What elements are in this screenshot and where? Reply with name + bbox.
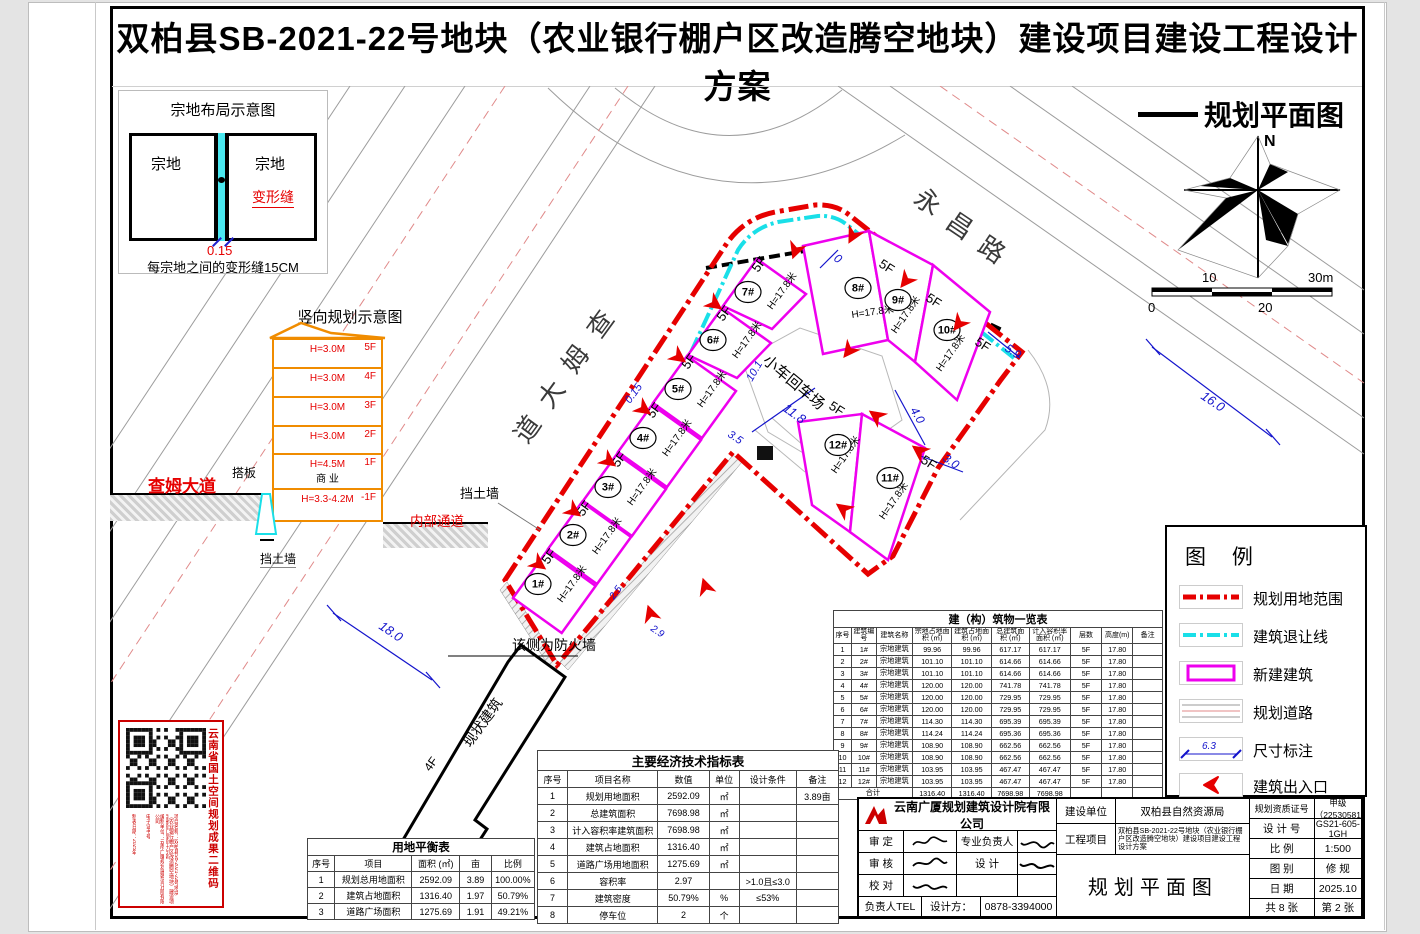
margin-line [1384, 2, 1385, 930]
company-name: 云南广厦规划建筑设计院有限公司 [888, 798, 1056, 832]
building-number: 11# [881, 473, 899, 485]
plan-label: 2.9 [647, 623, 666, 641]
building-number: 8# [852, 283, 864, 295]
cell: 5# [852, 691, 877, 703]
plan-label: 4.0 [907, 405, 928, 427]
cell: 11# [852, 763, 877, 775]
cell: 宗地建筑 [876, 715, 912, 727]
cell [1133, 763, 1163, 775]
cell: 4 [834, 679, 852, 691]
cell: 1 [538, 788, 568, 805]
cell: 1316.40 [658, 839, 709, 856]
cell: 道路广场面积 [335, 904, 412, 920]
cell: 99.96 [912, 643, 951, 655]
cell: 1# [852, 643, 877, 655]
cell: 7 [538, 890, 568, 907]
cell: 建筑名称 [876, 628, 912, 644]
parcel-left-box [129, 133, 217, 241]
qr-side-label: 云南省国土空间规划成果二维码 [206, 728, 221, 889]
cell: 17.80 [1102, 691, 1133, 703]
signature [1018, 853, 1056, 874]
landuse-table: 用地平衡表序号项目面积 (㎡)亩比例1规划总用地面积2592.093.89100… [307, 838, 535, 920]
cell: 695.39 [1029, 715, 1070, 727]
cell: 序号 [834, 628, 852, 644]
floor-1f: H=4.5M 商 业 1F [272, 453, 383, 490]
check-label: 审 核 [859, 853, 904, 874]
cell [1133, 751, 1163, 763]
cell: 计入容积率面积 (㎡) [1029, 628, 1070, 644]
building-number: 3# [602, 482, 614, 494]
parcel-caption: 每宗地之间的变形缝15CM [119, 257, 327, 276]
floor-5f: H=3.0M5F [272, 338, 383, 369]
cell: 617.17 [1029, 643, 1070, 655]
cell: 467.47 [991, 775, 1029, 787]
cell: 120.00 [952, 691, 991, 703]
indicator-table: 主要经济技术指标表序号项目名称数值单位设计条件备注1规划用地面积2592.09㎡… [537, 750, 839, 924]
cell: 1 [834, 643, 852, 655]
table-row: 1010#宗地建筑108.90108.90662.56662.565F17.80 [834, 751, 1163, 763]
cell: 建筑密度 [568, 890, 658, 907]
cell: 宗地建筑 [876, 751, 912, 763]
table-row: 1规划总用地面积2592.093.89100.00% [308, 872, 535, 888]
table-row: 1规划用地面积2592.09㎡3.89亩 [538, 788, 839, 805]
cell: 3 [538, 822, 568, 839]
table-row: 55#宗地建筑120.00120.00729.95729.955F17.80 [834, 691, 1163, 703]
table-row: 1212#宗地建筑103.95103.95467.47467.475F17.80 [834, 775, 1163, 787]
cell: 101.10 [952, 655, 991, 667]
cell: 741.78 [1029, 679, 1070, 691]
legend-item-boundary: 规划用地范围 [1179, 585, 1355, 611]
cell: 5F [1070, 643, 1101, 655]
cell [1133, 643, 1163, 655]
cell [739, 788, 796, 805]
cell: 宗地建筑 [876, 655, 912, 667]
cell: 729.95 [1029, 691, 1070, 703]
joint-label: 变形缝 [252, 187, 294, 208]
cell [739, 907, 796, 924]
cell: 宗地建筑 [876, 691, 912, 703]
cell: 12# [852, 775, 877, 787]
cell: 101.10 [912, 655, 951, 667]
table-row: 11#宗地建筑99.9699.96617.17617.175F17.80 [834, 643, 1163, 655]
legend-item-setback: 建筑退让线 [1179, 623, 1355, 649]
cell: 宗地建筑 [876, 763, 912, 775]
legend-item-new-building: 新建建筑 [1179, 661, 1355, 687]
table-header-row: 序号项目名称数值单位设计条件备注 [538, 771, 839, 788]
subtitle-dash [1138, 112, 1198, 117]
cell: 宗地建筑 [876, 703, 912, 715]
cell: 467.47 [1029, 763, 1070, 775]
cert-label: 规划资质证号 [1250, 799, 1315, 818]
table-header-row: 序号建筑编号建筑名称宗地占地面积 (㎡)建筑占地面积 (㎡)总建筑面积 (㎡)计… [834, 628, 1163, 644]
cell: 114.24 [912, 727, 951, 739]
cell: 3.89 [460, 872, 492, 888]
category-value: 修 规 [1315, 859, 1361, 878]
title-block: 云南广厦规划建筑设计院有限公司 审 定 专业负责人 审 核 设 计 校 对 负责… [857, 797, 1363, 918]
cell: 2# [852, 655, 877, 667]
cell: 662.56 [1029, 739, 1070, 751]
cell: 729.95 [991, 703, 1029, 715]
cell: 建筑占地面积 (㎡) [952, 628, 991, 644]
cell [1133, 691, 1163, 703]
cell [796, 856, 838, 873]
cell: 容积率 [568, 873, 658, 890]
slab-label: 搭板 [232, 464, 256, 481]
cell: 50.79% [491, 888, 534, 904]
cell: 4 [538, 839, 568, 856]
cell: 120.00 [952, 679, 991, 691]
cell [796, 805, 838, 822]
cell: 9# [852, 739, 877, 751]
cell: 8# [852, 727, 877, 739]
cell: % [709, 890, 739, 907]
cell [796, 839, 838, 856]
proof-label: 校 对 [859, 875, 904, 896]
cell: 120.00 [912, 703, 951, 715]
plan-label: 查 [581, 305, 621, 344]
cert-value: 甲级（22530581 [1315, 799, 1361, 818]
parcel-title: 宗地布局示意图 [119, 99, 327, 120]
cell: 5F [1070, 703, 1101, 715]
cell: 5F [1070, 655, 1101, 667]
cell: 103.95 [912, 775, 951, 787]
cell: 120.00 [952, 703, 991, 715]
owner-value: 双柏县自然资源局 [1116, 799, 1249, 823]
table-row: 8停车位2个 [538, 907, 839, 924]
retaining-wall-label: 挡土墙 [260, 550, 296, 568]
table-title-row: 主要经济技术指标表 [538, 751, 839, 771]
floor-4f: H=3.0M4F [272, 367, 383, 398]
entrance-arrow-icon [641, 604, 659, 622]
cell: 101.10 [912, 667, 951, 679]
cell: 宗地建筑 [876, 643, 912, 655]
cell: 建筑编号 [852, 628, 877, 644]
table-row: 7建筑密度50.79%%≤53% [538, 890, 839, 907]
cell: ≤53% [739, 890, 796, 907]
cell: 50.79% [658, 890, 709, 907]
cell: 3.89亩 [796, 788, 838, 805]
cell: 5F [1070, 775, 1101, 787]
cell [796, 890, 838, 907]
cell: 6 [834, 703, 852, 715]
legend-item-dimension: 6.3 尺寸标注 [1179, 737, 1355, 763]
utility-box [757, 446, 773, 460]
cell: 7698.98 [658, 805, 709, 822]
cell: 高度(m) [1102, 628, 1133, 644]
table-row: 22#宗地建筑101.10101.10614.66614.665F17.80 [834, 655, 1163, 667]
plan-label: 昌 [941, 206, 979, 245]
cell: 103.95 [952, 763, 991, 775]
cell: 5F [1070, 715, 1101, 727]
cell: 项目 [335, 856, 412, 872]
parcel-left-label: 宗地 [151, 153, 181, 174]
plan-label: 4F [421, 754, 441, 774]
cell: 17.80 [1102, 703, 1133, 715]
cell [739, 839, 796, 856]
building-number: 5# [672, 384, 684, 396]
cell: 467.47 [1029, 775, 1070, 787]
cell: 宗地建筑 [876, 775, 912, 787]
cell: 120.00 [912, 679, 951, 691]
cell: 108.90 [912, 751, 951, 763]
cell: 宗地建筑 [876, 667, 912, 679]
cell: 总建筑面积 (㎡) [991, 628, 1029, 644]
signature [1018, 831, 1056, 852]
cell [1133, 739, 1163, 751]
cell: 3 [834, 667, 852, 679]
cell: 101.10 [952, 667, 991, 679]
cell: ㎡ [709, 788, 739, 805]
retaining-wall-shape [254, 492, 282, 544]
cell: 17.80 [1102, 679, 1133, 691]
cell: 4# [852, 679, 877, 691]
parcel-layout-panel: 宗地布局示意图 宗地 宗地 变形缝 0.15 每宗地之间的变形缝15CM [118, 90, 328, 274]
cell: 2 [658, 907, 709, 924]
cell [1133, 727, 1163, 739]
cell: 114.30 [912, 715, 951, 727]
cell: 5F [1070, 667, 1101, 679]
cell [1133, 679, 1163, 691]
cell: 设计条件 [739, 771, 796, 788]
cell: 695.36 [991, 727, 1029, 739]
plan-label: 3.5 [725, 429, 745, 448]
plan-label: 16.0 [1198, 388, 1228, 415]
table-row: 2建筑占地面积1316.401.9750.79% [308, 888, 535, 904]
cell: ㎡ [709, 856, 739, 873]
cell: 10# [852, 751, 877, 763]
cell: ㎡ [709, 839, 739, 856]
table-row: 99#宗地建筑108.90108.90662.56662.565F17.80 [834, 739, 1163, 751]
cell: 个 [709, 907, 739, 924]
cell: 1316.40 [412, 888, 460, 904]
cell: 2 [308, 888, 335, 904]
cell: 729.95 [1029, 703, 1070, 715]
cell: 614.66 [1029, 667, 1070, 679]
cell [1133, 703, 1163, 715]
category-label: 图 别 [1250, 859, 1315, 878]
table-row: 77#宗地建筑114.30114.30695.39695.395F17.80 [834, 715, 1163, 727]
cell: 层数 [1070, 628, 1101, 644]
tel-value: 0878-3394000 [981, 897, 1056, 916]
cell: 序号 [308, 856, 335, 872]
cell: 1275.69 [658, 856, 709, 873]
cell [796, 822, 838, 839]
cell: 总建筑面积 [568, 805, 658, 822]
signature [904, 853, 957, 874]
cell: 108.90 [912, 739, 951, 751]
scale-label: 比 例 [1250, 839, 1315, 858]
cell: 7698.98 [658, 822, 709, 839]
cell: 6 [538, 873, 568, 890]
plan-label: 5.9 [1002, 341, 1024, 362]
table-header-row: 序号项目面积 (㎡)亩比例 [308, 856, 535, 872]
cell: 用地平衡表 [308, 839, 535, 856]
legend-item-entrance: 建筑出入口 [1179, 773, 1355, 799]
signature [904, 831, 957, 852]
cell: 17.80 [1102, 763, 1133, 775]
cell [796, 873, 838, 890]
cell: 108.90 [952, 751, 991, 763]
building-list-table: 建（构）筑物一览表序号建筑编号建筑名称宗地占地面积 (㎡)建筑占地面积 (㎡)总… [833, 610, 1163, 800]
table-row: 33#宗地建筑101.10101.10614.66614.665F17.80 [834, 667, 1163, 679]
sheets-total: 共 8 张 [1250, 899, 1315, 916]
plan-label: 3.0 [940, 451, 962, 472]
cell: 8 [834, 727, 852, 739]
cell: 2 [834, 655, 852, 667]
cell: 103.95 [952, 775, 991, 787]
cell: 3# [852, 667, 877, 679]
cell: 49.21% [491, 904, 534, 920]
cell: 17.80 [1102, 715, 1133, 727]
parcel-right-label: 宗地 [255, 153, 285, 174]
cell: 695.36 [1029, 727, 1070, 739]
cell: 项目名称 [568, 771, 658, 788]
inner-passage-label: 内部通道 [410, 510, 464, 530]
cell: 备注 [796, 771, 838, 788]
cell: 规划用地面积 [568, 788, 658, 805]
cell: 6# [852, 703, 877, 715]
cell: 17.80 [1102, 775, 1133, 787]
scale-tick: 10 [1202, 270, 1216, 285]
table-row: 1111#宗地建筑103.95103.95467.47467.475F17.80 [834, 763, 1163, 775]
cell: >1.0且≤3.0 [739, 873, 796, 890]
cell: 103.95 [912, 763, 951, 775]
date-value: 2025.10 [1315, 879, 1361, 898]
table-row: 6容积率2.97>1.0且≤3.0 [538, 873, 839, 890]
design-label: 设 计 [957, 853, 1018, 875]
signature [904, 875, 957, 896]
cell: 662.56 [991, 739, 1029, 751]
sheet-number: 第 2 张 [1315, 899, 1361, 916]
cell: 3 [308, 904, 335, 920]
scale-tick: 30m [1308, 270, 1333, 285]
floor-b1: H=3.3-4.2M-1F [272, 488, 383, 522]
cell: 614.66 [1029, 655, 1070, 667]
cell: 5F [1070, 739, 1101, 751]
cell: 17.80 [1102, 727, 1133, 739]
cell [1133, 775, 1163, 787]
cell: 108.90 [952, 739, 991, 751]
qr-text-column: 项目名称：双柏县SB-2021-22号地块（农业银行棚户区改造腾空地块）建设项目… [166, 814, 178, 904]
cell: 99.96 [952, 643, 991, 655]
margin-line [95, 2, 96, 930]
cell [709, 873, 739, 890]
cell: 114.24 [952, 727, 991, 739]
cell: 2 [538, 805, 568, 822]
date-label: 日 期 [1250, 879, 1315, 898]
scale-bar: 10 30m 0 20 [1140, 268, 1360, 320]
cell: 7 [834, 715, 852, 727]
table-row: 3道路广场面积1275.691.9149.21% [308, 904, 535, 920]
qr-panel: 云南省国土空间规划成果二维码 项目名称：双柏县SB-2021-22号地块（农业银… [118, 720, 224, 908]
legend-item-road: 规划道路 [1179, 699, 1355, 725]
cell: 17.80 [1102, 667, 1133, 679]
table-row: 66#宗地建筑120.00120.00729.95729.955F17.80 [834, 703, 1163, 715]
cell: 614.66 [991, 667, 1029, 679]
cell: 120.00 [912, 691, 951, 703]
cell: 宗地建筑 [876, 739, 912, 751]
plan-label: 该侧为防火墙 [512, 637, 596, 653]
cell: 1.91 [460, 904, 492, 920]
designno-value: GS21-605-1GH [1315, 819, 1361, 838]
building-number: 7# [742, 287, 754, 299]
cell: 停车位 [568, 907, 658, 924]
cell: 100.00% [491, 872, 534, 888]
cell: 比例 [491, 856, 534, 872]
table-row: 4建筑占地面积1316.40㎡ [538, 839, 839, 856]
north-compass: N [1168, 126, 1358, 286]
legend-title: 图 例 [1185, 541, 1263, 571]
building-number: 6# [707, 335, 719, 347]
cell: 建筑占地面积 [335, 888, 412, 904]
cell: 道路广场用地面积 [568, 856, 658, 873]
cell [1133, 655, 1163, 667]
cell: 5 [538, 856, 568, 873]
designno-label: 设 计 号 [1250, 819, 1315, 838]
cell: 5F [1070, 679, 1101, 691]
cell [739, 805, 796, 822]
cell: 1275.69 [412, 904, 460, 920]
cell: 2.97 [658, 873, 709, 890]
cell: 面积 (㎡) [412, 856, 460, 872]
legend-panel: 图 例 规划用地范围 建筑退让线 新建建筑 规划道路 6.3 尺寸标注 建筑出入… [1165, 525, 1367, 797]
cell: 114.30 [952, 715, 991, 727]
svg-text:6.3: 6.3 [1202, 741, 1216, 752]
cell: 宗地占地面积 (㎡) [912, 628, 951, 644]
cell: 5F [1070, 751, 1101, 763]
cell: ㎡ [709, 805, 739, 822]
cell: 1 [308, 872, 335, 888]
cell: 5 [834, 691, 852, 703]
cell: 614.66 [991, 655, 1029, 667]
cell: 2592.09 [412, 872, 460, 888]
scale-value: 1:500 [1315, 839, 1361, 858]
cell: 备注 [1133, 628, 1163, 644]
cell: 1.97 [460, 888, 492, 904]
building-number: 12# [829, 440, 847, 452]
qr-text-columns: 项目名称：双柏县SB-2021-22号地块（农业银行棚户区改造腾空地块）建设项目… [124, 814, 178, 904]
cell [739, 822, 796, 839]
lead-label: 专业负责人 [957, 831, 1018, 852]
cell: 5F [1070, 763, 1101, 775]
cell: 695.39 [991, 715, 1029, 727]
cell: 467.47 [991, 763, 1029, 775]
cell: 建筑占地面积 [568, 839, 658, 856]
cell: 17.80 [1102, 655, 1133, 667]
cell: 729.95 [991, 691, 1029, 703]
project-label: 工程项目 [1057, 824, 1116, 854]
plan-label: 永 [909, 182, 947, 221]
scale-tick: 20 [1258, 300, 1272, 315]
cell: 617.17 [991, 643, 1029, 655]
plan-label: 18.0 [376, 618, 406, 645]
cell [1133, 715, 1163, 727]
cell: 序号 [538, 771, 568, 788]
cell: 5F [1070, 727, 1101, 739]
cell: 宗地建筑 [876, 679, 912, 691]
floor-2f: H=3.0M2F [272, 425, 383, 455]
company-logo [862, 803, 888, 827]
ground-left [110, 493, 262, 521]
chamu-road-label: 查姆大道 [148, 472, 216, 497]
cell [739, 856, 796, 873]
vertical-section-panel: 竖向规划示意图 H=3.0M5F H=3.0M4F H=3.0M3F H=3.0… [110, 298, 580, 590]
qr-text-column: 电子证书号 [138, 814, 150, 904]
roof [268, 318, 388, 340]
cell: 17.80 [1102, 751, 1133, 763]
qr-text-column: 编制单位：云南广厦规划建筑设计院有限公司 [152, 814, 164, 904]
table-row: 88#宗地建筑114.24114.24695.36695.365F17.80 [834, 727, 1163, 739]
